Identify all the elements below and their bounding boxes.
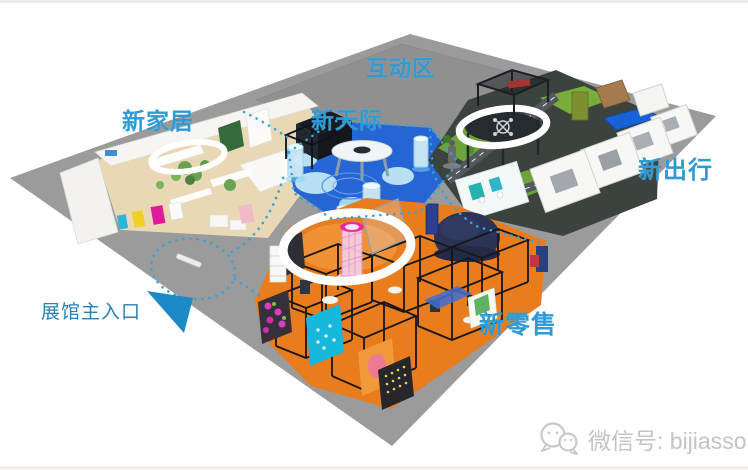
zone-label-retail: 新零售: [479, 313, 557, 338]
zone-label-interactive: 互动区: [366, 58, 435, 80]
entrance-arrow-triangle: [147, 291, 193, 333]
wechat-icon: [538, 420, 582, 458]
wechat-watermark: 微信号: bijiasso: [538, 420, 746, 458]
zone-label-home: 新家居: [122, 110, 194, 133]
home-counter: [210, 215, 228, 227]
red-banner: [530, 255, 539, 267]
exhibition-map: 互动区 新家居 新天际 新出行 新零售 展馆主入口 微信号: bijiasso: [0, 0, 748, 470]
zone-label-mobility: 新出行: [638, 159, 713, 183]
wechat-id-text: 微信号: bijiasso: [588, 422, 746, 456]
blue-pillar: [426, 204, 438, 234]
entrance-label: 展馆主入口: [41, 303, 141, 322]
zone-label-sky: 新天际: [311, 109, 383, 132]
green-stack-booth: [572, 92, 588, 120]
